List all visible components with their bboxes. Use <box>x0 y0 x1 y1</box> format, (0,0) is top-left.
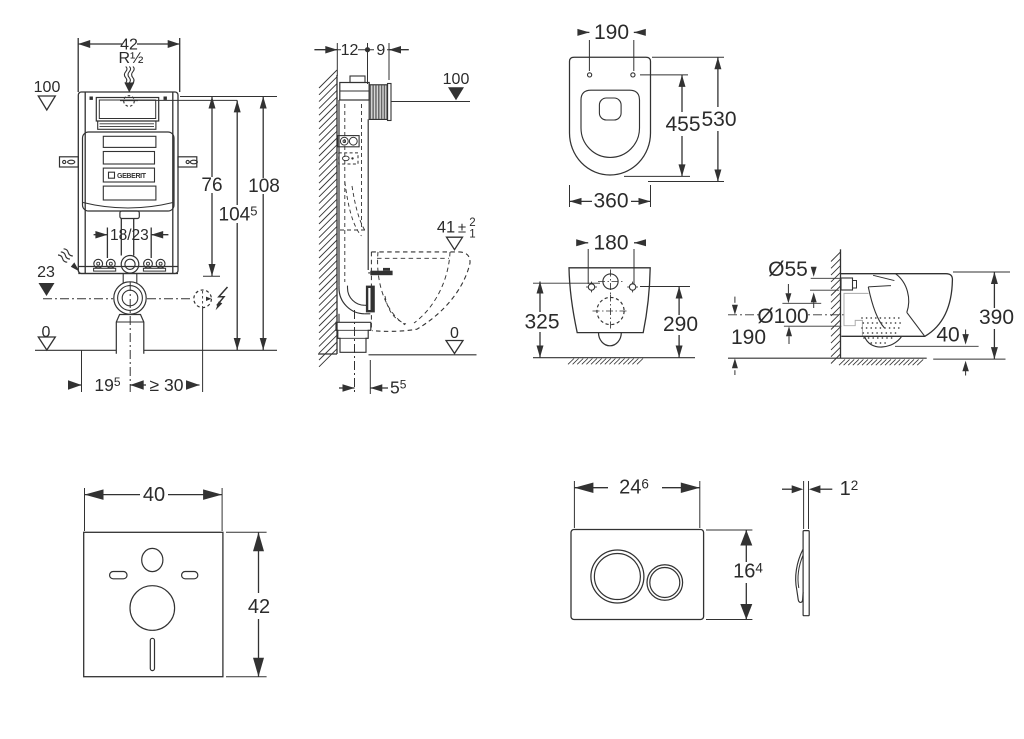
svg-text:325: 325 <box>524 311 559 334</box>
svg-text:Ø100: Ø100 <box>757 305 808 328</box>
svg-text:≥ 30: ≥ 30 <box>150 375 184 395</box>
svg-text:190: 190 <box>594 21 629 44</box>
svg-text:23: 23 <box>37 264 55 281</box>
svg-text:42: 42 <box>248 596 270 618</box>
svg-text:40: 40 <box>143 484 165 506</box>
svg-text:76: 76 <box>201 175 222 196</box>
svg-text:2: 2 <box>469 217 475 229</box>
svg-text:Ø55: Ø55 <box>768 258 808 281</box>
svg-text:1: 1 <box>469 229 475 241</box>
svg-text:290: 290 <box>663 313 698 336</box>
svg-text:360: 360 <box>593 190 628 213</box>
svg-text:0: 0 <box>450 325 459 342</box>
svg-text:100: 100 <box>34 79 61 96</box>
svg-text:9: 9 <box>376 42 385 59</box>
svg-text:41: 41 <box>437 219 455 237</box>
svg-text:GEBERIT: GEBERIT <box>117 173 147 180</box>
svg-text:±: ± <box>458 220 466 237</box>
svg-text:18/23: 18/23 <box>110 227 149 244</box>
svg-text:12: 12 <box>341 42 359 59</box>
svg-text:40: 40 <box>936 324 959 347</box>
svg-text:530: 530 <box>701 108 736 131</box>
svg-text:190: 190 <box>731 326 766 349</box>
svg-text:390: 390 <box>979 306 1014 329</box>
svg-text:455: 455 <box>665 113 700 136</box>
svg-text:180: 180 <box>593 232 628 255</box>
svg-text:100: 100 <box>443 71 470 88</box>
svg-text:R½: R½ <box>119 50 144 67</box>
svg-text:108: 108 <box>248 176 280 197</box>
